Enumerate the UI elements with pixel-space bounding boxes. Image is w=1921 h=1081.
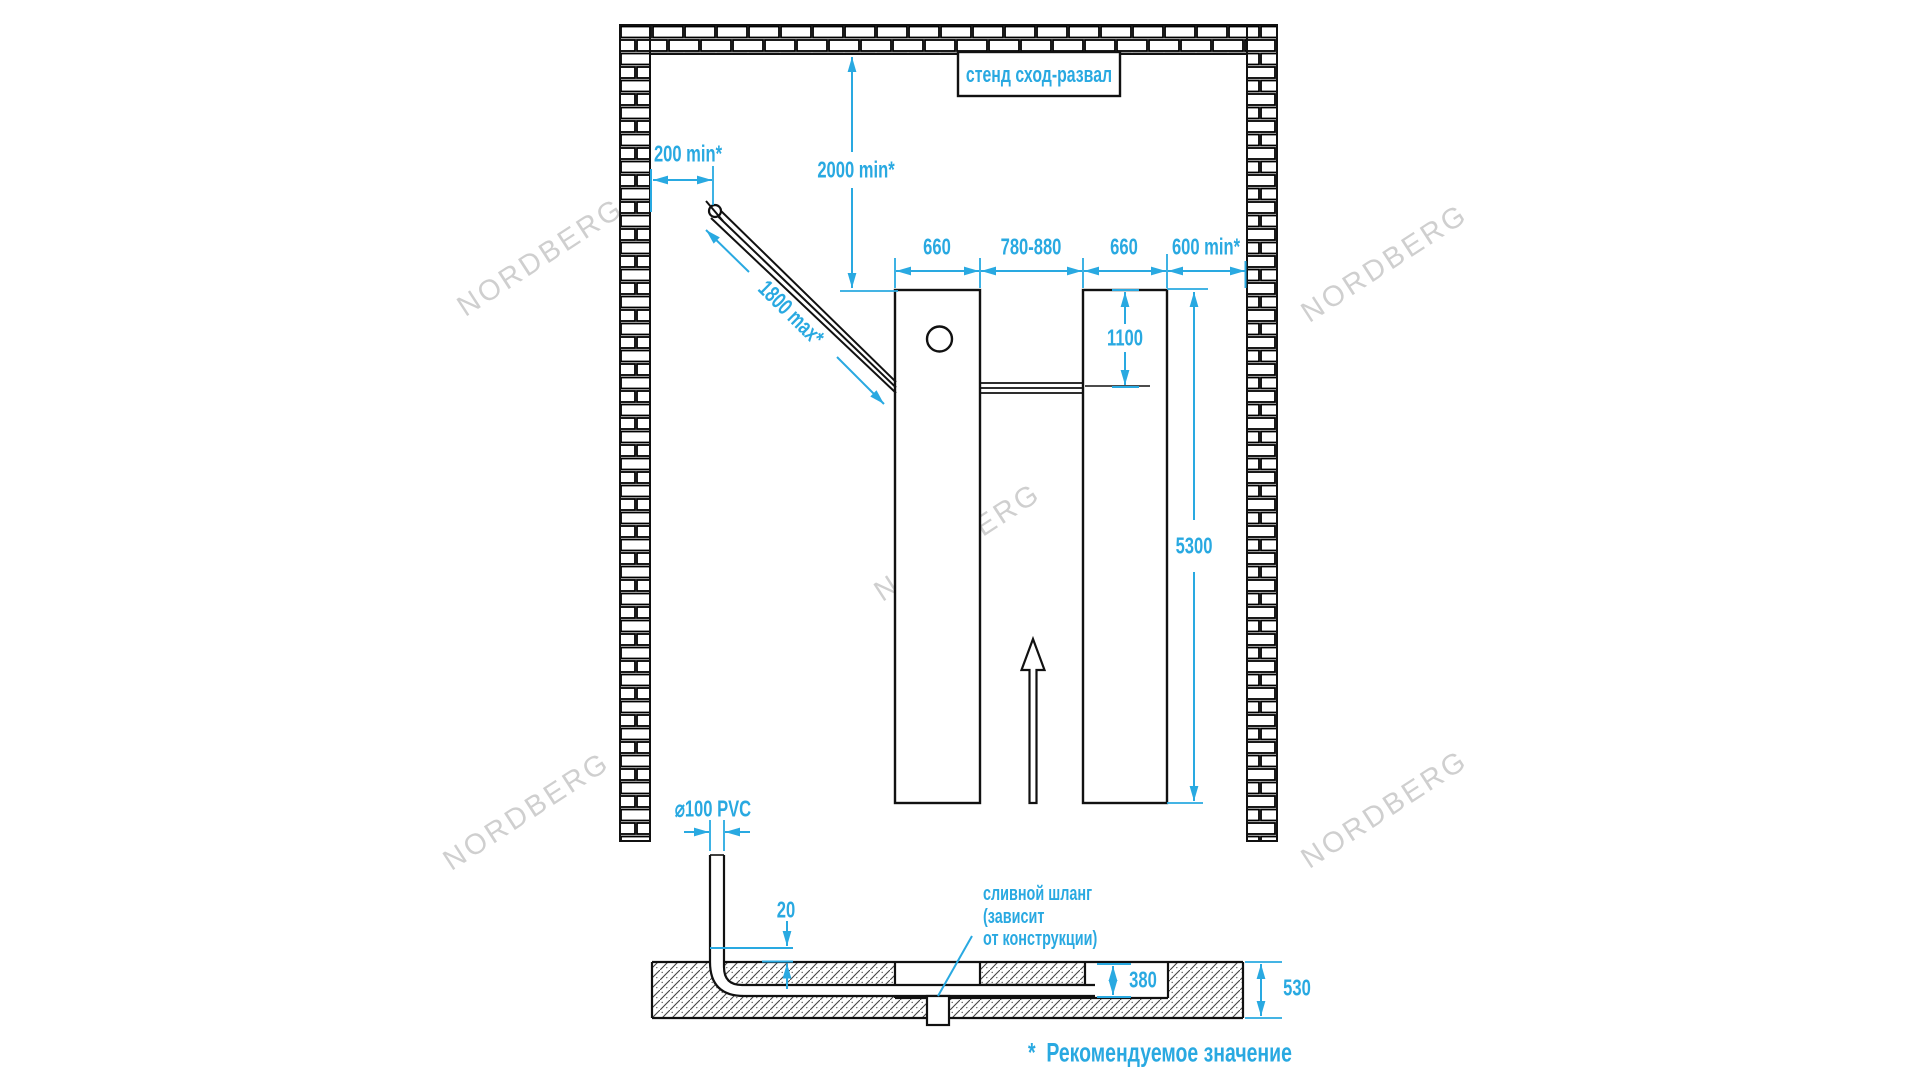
drain-hose-label-line3: от конструкции)	[983, 928, 1097, 950]
drain-hose-label-line2: (зависит	[983, 906, 1044, 928]
stand-label: стенд сход-развал	[966, 62, 1112, 88]
dim-foundation-depth: 530	[1283, 975, 1311, 1002]
drain-stub	[927, 996, 949, 1025]
dim-platform-length: 5300	[1176, 533, 1213, 560]
dim-trench-depth: 380	[1129, 967, 1157, 994]
installation-diagram: NORDBERG NORDBERG NORDBERG NORDBERG NORD…	[0, 0, 1921, 1081]
dim-track-gap: 780-880	[1001, 234, 1062, 261]
dim-wall-clearance-left: 200 min*	[654, 141, 722, 168]
dim-wall-clearance-right: 600 min*	[1172, 234, 1240, 261]
footnote: * Рекомендуемое значение	[1028, 1038, 1292, 1069]
dim-platform-width-right: 660	[1110, 234, 1138, 261]
drain-hose-label-line1: сливной шланг	[983, 883, 1092, 905]
dim-platform-width-left: 660	[923, 234, 951, 261]
travel-direction-arrow	[1022, 639, 1045, 803]
dim-ceiling-clearance: 2000 min*	[817, 157, 894, 184]
dim-pipe-above-floor: 20	[777, 897, 795, 924]
dim-hose-entry-height: 1100	[1107, 325, 1143, 352]
dim-pipe-diameter: ⌀100 PVC	[675, 796, 751, 823]
diagram-canvas	[0, 0, 1921, 1081]
